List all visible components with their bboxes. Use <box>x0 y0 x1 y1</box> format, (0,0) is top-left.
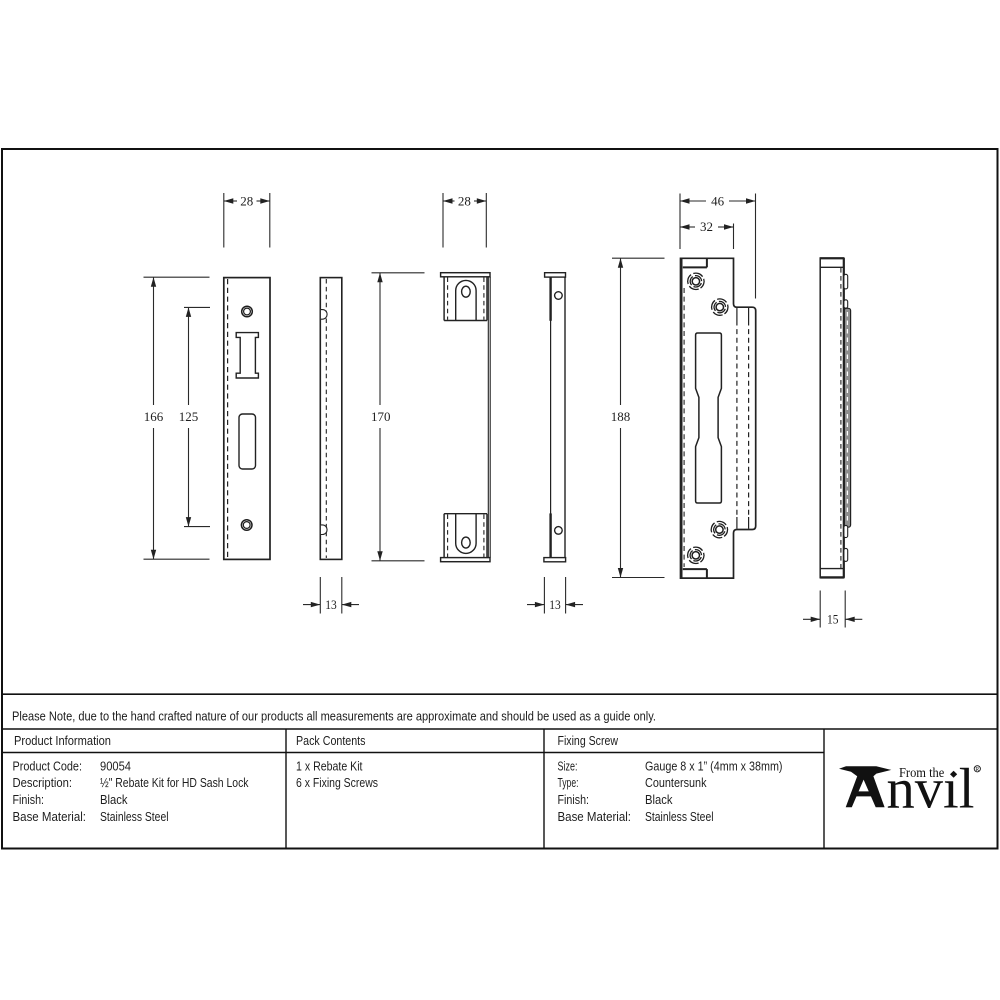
svg-text:Product Code:: Product Code: <box>13 760 83 774</box>
svg-text:Type:: Type: <box>558 776 579 790</box>
svg-text:28: 28 <box>458 193 471 208</box>
svg-text:Black: Black <box>645 793 673 807</box>
svg-text:Fixing Screw: Fixing Screw <box>558 733 619 748</box>
svg-text:Countersunk: Countersunk <box>645 776 707 790</box>
svg-text:½" Rebate Kit for HD Sash Lock: ½" Rebate Kit for HD Sash Lock <box>100 776 249 790</box>
svg-text:13: 13 <box>549 597 561 612</box>
svg-text:188: 188 <box>611 409 631 424</box>
svg-text:13: 13 <box>325 597 337 612</box>
svg-text:Please Note, due to the hand c: Please Note, due to the hand crafted nat… <box>12 709 656 724</box>
svg-text:125: 125 <box>179 409 199 424</box>
svg-text:Stainless Steel: Stainless Steel <box>645 810 714 824</box>
svg-text:Pack Contents: Pack Contents <box>296 733 366 748</box>
svg-text:Black: Black <box>100 793 128 807</box>
svg-text:Finish:: Finish: <box>558 793 590 807</box>
svg-text:Base Material:: Base Material: <box>558 810 632 824</box>
svg-text:Description:: Description: <box>13 776 73 790</box>
svg-text:6 x Fixing Screws: 6 x Fixing Screws <box>296 776 378 790</box>
svg-text:From the: From the <box>899 766 944 781</box>
svg-text:90054: 90054 <box>100 760 131 774</box>
svg-text:R: R <box>975 767 979 773</box>
svg-text:Base Material:: Base Material: <box>13 810 87 824</box>
svg-text:1 x Rebate Kit: 1 x Rebate Kit <box>296 760 363 774</box>
svg-text:15: 15 <box>827 612 839 627</box>
svg-text:Product Information: Product Information <box>14 733 111 748</box>
svg-text:28: 28 <box>240 193 253 208</box>
svg-text:Gauge 8 x 1” (4mm x 38mm): Gauge 8 x 1” (4mm x 38mm) <box>645 760 783 774</box>
svg-text:32: 32 <box>700 219 713 234</box>
svg-text:Finish:: Finish: <box>13 793 45 807</box>
svg-text:170: 170 <box>371 409 391 424</box>
svg-text:Size:: Size: <box>558 760 578 774</box>
svg-text:Stainless Steel: Stainless Steel <box>100 810 169 824</box>
svg-text:46: 46 <box>711 193 725 208</box>
svg-text:166: 166 <box>144 409 164 424</box>
